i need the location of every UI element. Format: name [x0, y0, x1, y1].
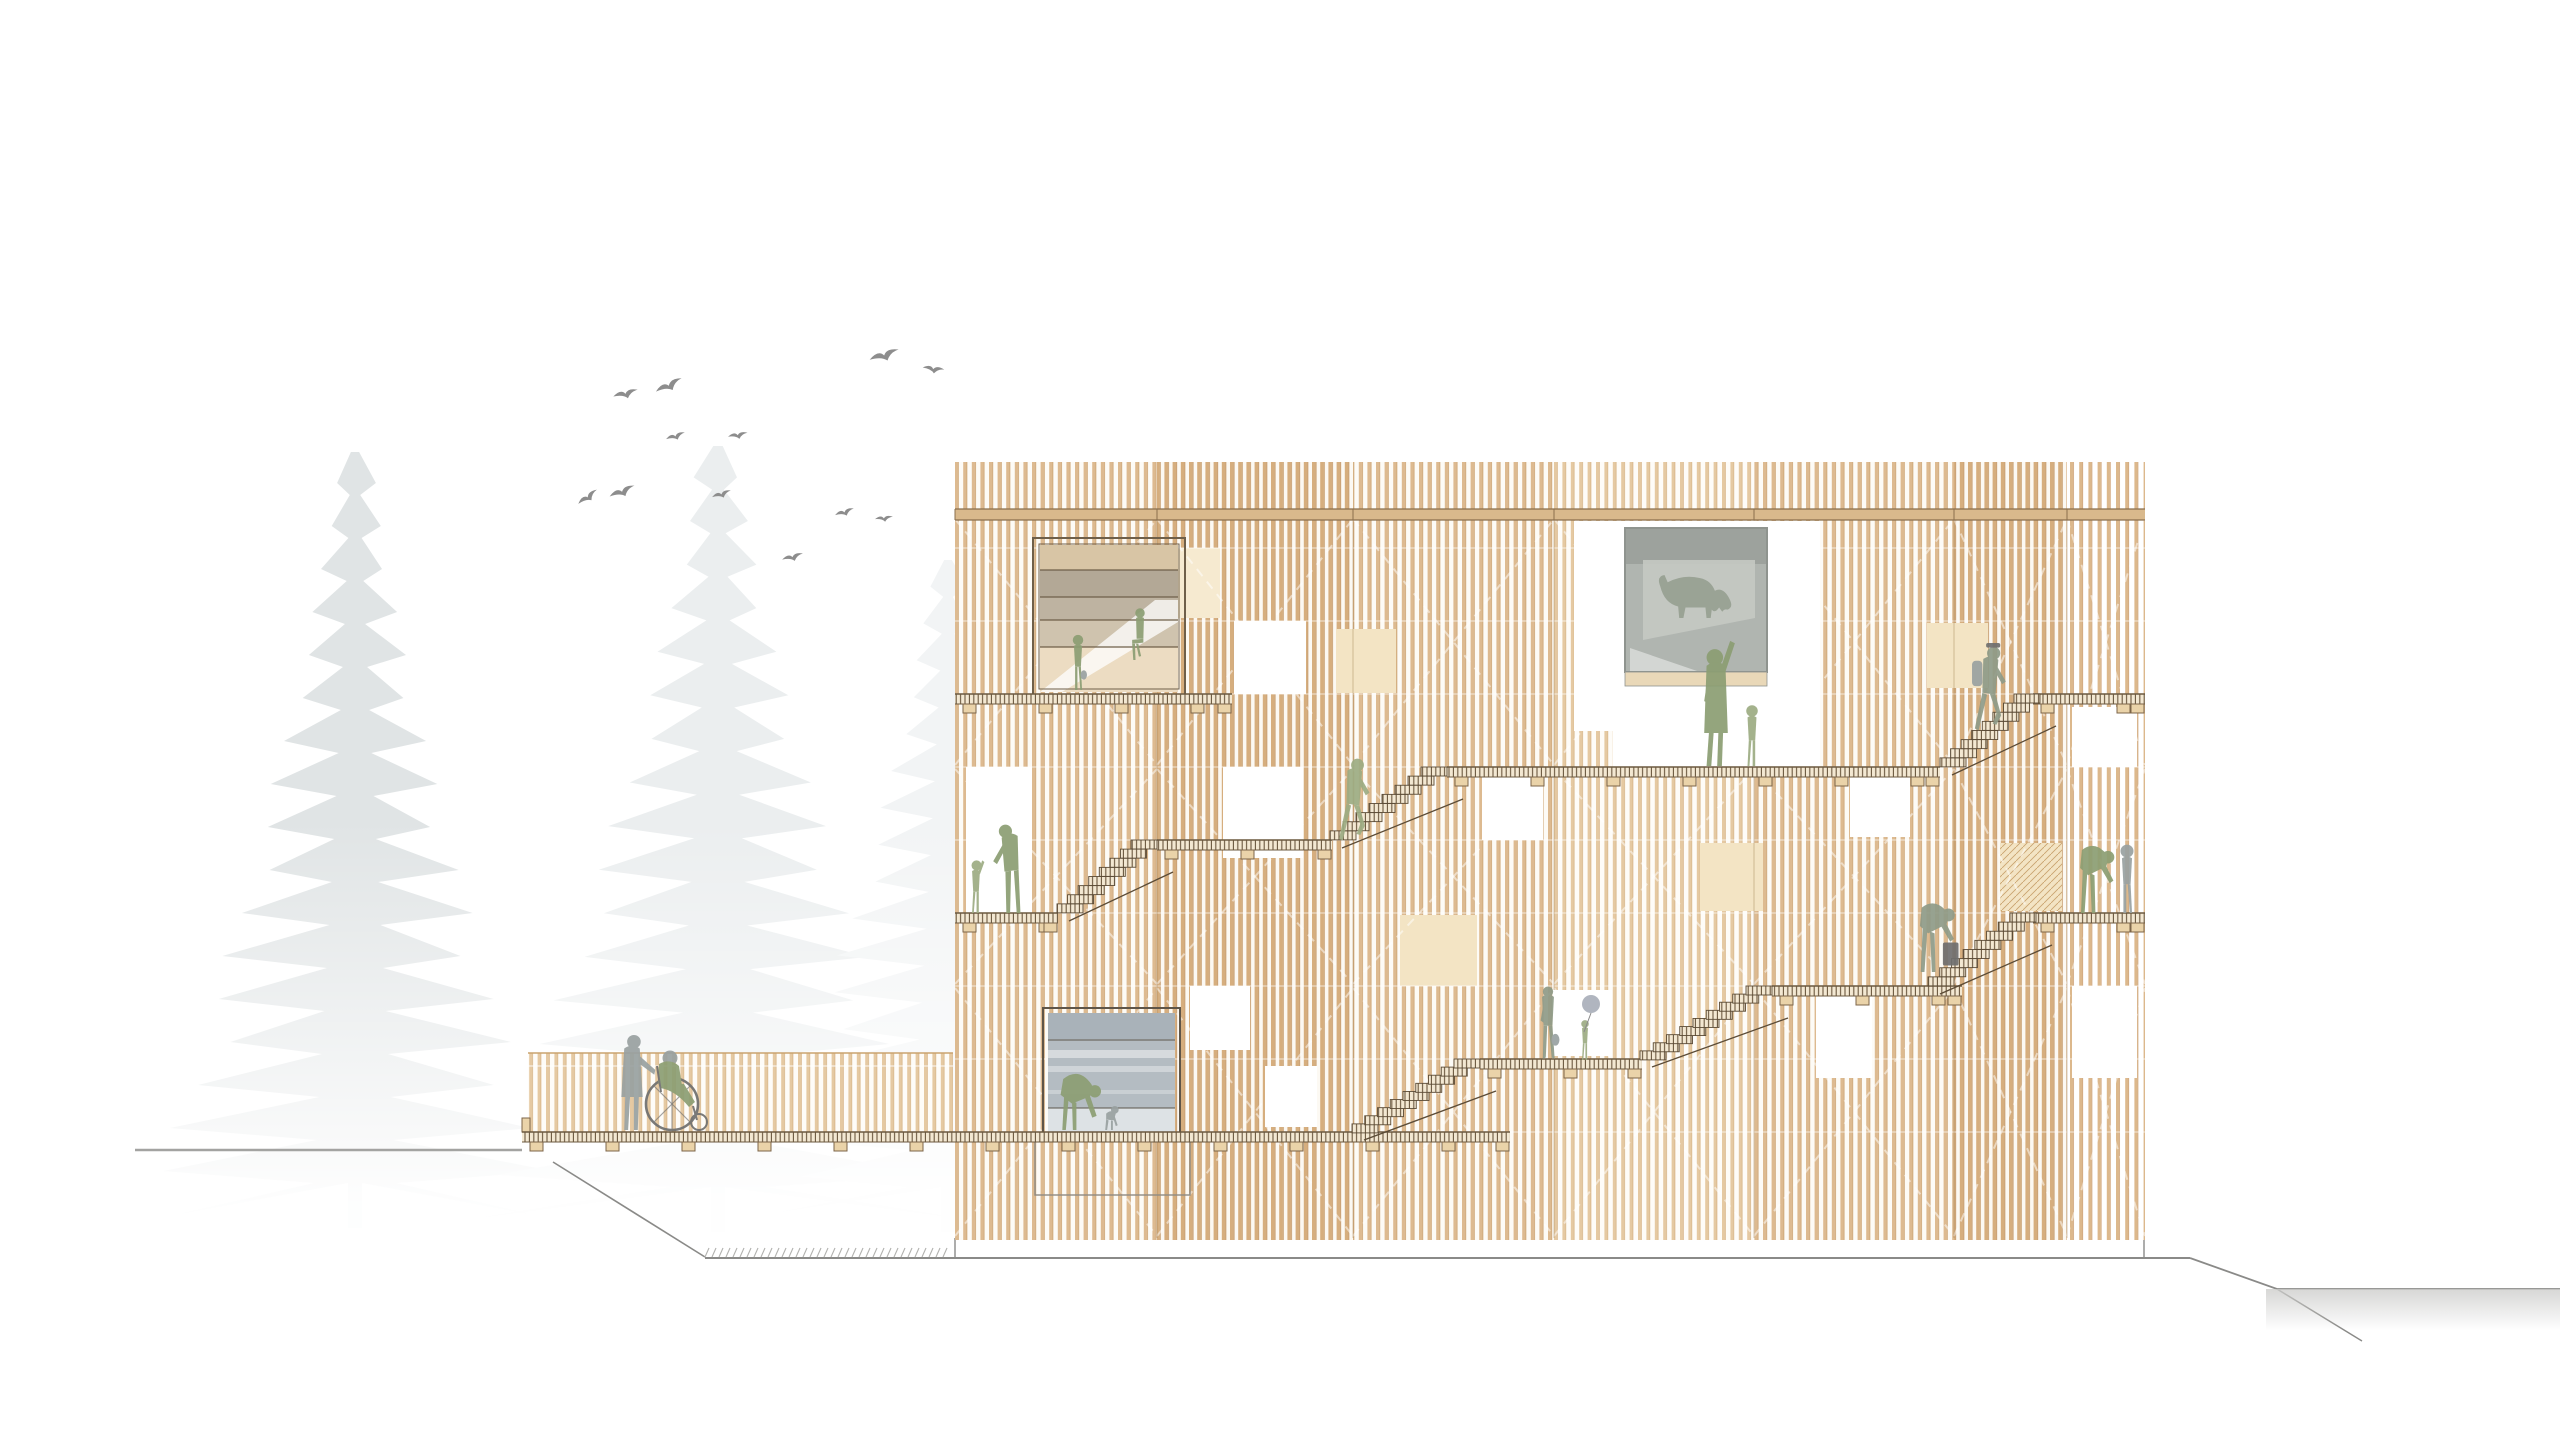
walkway-footing — [1835, 777, 1848, 786]
walkway-footing — [2117, 923, 2130, 932]
figure-body-part — [1074, 644, 1082, 666]
walkway-deck-band — [1480, 1059, 1642, 1069]
walkway-footing — [2131, 923, 2144, 932]
walkway-footing — [1115, 704, 1128, 713]
ground-shadow-wash — [2266, 1289, 2560, 1331]
walkway-footing — [1496, 1142, 1509, 1151]
walkway-footing — [1138, 1142, 1151, 1151]
top-beam — [955, 509, 2145, 520]
figure-body-part — [1111, 1120, 1113, 1130]
sky-reflection-streak — [1048, 1050, 1175, 1058]
stair-step — [1998, 922, 2024, 931]
backpack-prop — [1972, 661, 1982, 686]
window-reading-nook — [1033, 538, 1185, 695]
stair-step — [1940, 968, 1966, 977]
figure-head — [1073, 635, 1083, 645]
figure-body-part — [2122, 856, 2132, 884]
stair-step — [1987, 931, 2013, 940]
walkway-footing — [963, 923, 976, 932]
stair-step — [1720, 1002, 1746, 1011]
plain-panel-1 — [1336, 629, 1396, 693]
walkway-footing — [1948, 996, 1961, 1005]
walkway-deck-band — [1447, 767, 1940, 777]
stair-step — [1951, 749, 1977, 758]
mist-fade — [60, 820, 990, 1270]
stair-step — [1928, 977, 1954, 986]
stair-step — [1099, 867, 1125, 876]
figure-body-part — [2123, 884, 2126, 913]
walkway-footing — [2131, 704, 2144, 713]
stair-step — [1131, 840, 1157, 849]
walkway-footing — [1318, 850, 1331, 859]
stair-step — [1640, 1051, 1666, 1060]
stair-step — [2003, 703, 2029, 712]
stair-step — [1390, 1100, 1416, 1109]
stair-step — [1940, 758, 1966, 767]
walkway-footing — [1926, 777, 1939, 786]
stair-step — [1972, 731, 1998, 740]
stair-step — [1057, 904, 1083, 913]
walkway-deck-band — [2033, 694, 2145, 704]
stair-step — [1395, 785, 1421, 794]
walkway-footing — [1607, 777, 1620, 786]
walkway-footing — [1856, 996, 1869, 1005]
stair-step — [1068, 895, 1094, 904]
opening-lower-square-2 — [1190, 986, 1250, 1050]
opening-lower-right-edge — [2072, 986, 2137, 1078]
window-dog — [1574, 521, 1820, 767]
stair-step — [1706, 1010, 1732, 1019]
ramp-railing-slats — [528, 1053, 953, 1132]
walkway-footing — [1911, 777, 1924, 786]
stair-step — [1429, 1075, 1455, 1084]
balloon — [1582, 995, 1600, 1013]
cap-prop — [1986, 643, 2000, 648]
figure-head — [1135, 608, 1145, 618]
stair-step — [1416, 1083, 1442, 1092]
stair-step — [2010, 913, 2036, 922]
stair-step — [1089, 877, 1115, 886]
stair-step — [1408, 776, 1434, 785]
interior-band — [1040, 570, 1178, 597]
walkway-footing — [1214, 1142, 1227, 1151]
figure-body-part — [1005, 871, 1011, 913]
walkway-footing — [1062, 1142, 1075, 1151]
walkway-footing — [2041, 923, 2054, 932]
walkway-footing — [2117, 704, 2130, 713]
walkway-footing — [1455, 777, 1468, 786]
sky-reflection-streak — [1048, 1066, 1175, 1072]
figure-body-part — [1753, 740, 1756, 766]
walkway-footing — [1683, 777, 1696, 786]
opening-mid-square-3 — [1850, 775, 1910, 837]
figure-body-part — [977, 892, 979, 913]
stair-step — [1680, 1027, 1706, 1036]
figure-body-part — [1136, 617, 1144, 639]
figure-body-part — [621, 1046, 642, 1097]
bag-prop — [1551, 1034, 1559, 1046]
walkway-footing — [758, 1142, 771, 1151]
opening-lower-square-3 — [1265, 1066, 1317, 1127]
walkway-footing — [1442, 1142, 1455, 1151]
stair-step — [2014, 694, 2040, 703]
stair-step — [1078, 886, 1104, 895]
stair-step — [1961, 740, 1987, 749]
walkway-footing — [1780, 996, 1793, 1005]
stair-step — [1653, 1043, 1679, 1052]
suitcase-prop — [1943, 943, 1959, 966]
walkway-footing — [1044, 923, 1057, 932]
walkway-footing — [1290, 1142, 1303, 1151]
figure-body-part — [1982, 656, 1998, 694]
figure-body-part — [1748, 716, 1757, 741]
walkway-footing — [1531, 777, 1544, 786]
plain-panel-2 — [1400, 915, 1477, 986]
opening-upper-right — [2072, 707, 2137, 767]
glazing-top-shade — [1625, 528, 1767, 564]
stair-step — [1421, 767, 1447, 776]
ramp-end-post — [522, 1118, 530, 1132]
walkway-footing — [1039, 704, 1052, 713]
walkway-footing — [1191, 704, 1204, 713]
stair-step — [1120, 849, 1146, 858]
elevation-drawing — [0, 0, 2560, 1440]
walkway-footing — [2041, 704, 2054, 713]
stair-step — [1667, 1035, 1693, 1044]
stair-step — [1382, 794, 1408, 803]
glazing-top-band — [1048, 1013, 1175, 1039]
stair-step — [1441, 1067, 1467, 1076]
stair-step — [1403, 1091, 1429, 1100]
stair-step — [1733, 994, 1759, 1003]
stair-step — [1454, 1059, 1480, 1068]
walkway-footing — [682, 1142, 695, 1151]
figure-head — [1746, 705, 1758, 717]
walkway-deck-band — [1772, 986, 1962, 996]
walkway-footing — [834, 1142, 847, 1151]
stair-step — [1693, 1018, 1719, 1027]
stair-step — [1352, 1124, 1378, 1133]
walkway-deck-band — [1157, 840, 1332, 850]
window-sill — [1625, 672, 1767, 686]
walkway-footing — [1218, 704, 1231, 713]
walkway-footing — [1488, 1069, 1501, 1078]
walkway-footing — [530, 1142, 543, 1151]
stair-step — [1365, 1116, 1391, 1125]
walkway-footing — [1759, 777, 1772, 786]
opening-upper-square-1 — [1234, 621, 1306, 694]
walkway-deck-band — [955, 913, 1058, 923]
stair-step — [1963, 950, 1989, 959]
walkway-deck-band — [522, 1132, 1510, 1142]
walkway-deck-band — [2033, 913, 2145, 923]
walkway-footing — [963, 704, 976, 713]
stair-step — [1369, 804, 1395, 813]
bag-prop — [1081, 670, 1087, 679]
walkway-footing — [986, 1142, 999, 1151]
figure-head — [2121, 845, 2134, 858]
stair-step — [1378, 1108, 1404, 1117]
walkway-footing — [1241, 850, 1254, 859]
figure-body-part — [1002, 834, 1019, 872]
interior-top-band — [1040, 545, 1178, 570]
stair-step — [1110, 858, 1136, 867]
figure-body-part — [1585, 1043, 1587, 1060]
figure-body-part — [1346, 768, 1362, 806]
walkway-footing — [606, 1142, 619, 1151]
walkway-footing — [1564, 1069, 1577, 1078]
access-ramp — [522, 1053, 953, 1132]
walkway-footing — [1366, 1142, 1379, 1151]
walkway-footing — [1628, 1069, 1641, 1078]
stair-step — [1746, 986, 1772, 995]
figure-body-part — [1075, 667, 1077, 690]
walkway-footing — [1932, 996, 1945, 1005]
walkway-deck-band — [955, 694, 1232, 704]
walkway-footing — [910, 1142, 923, 1151]
walkway-footing — [1165, 850, 1178, 859]
stair-step — [1975, 940, 2001, 949]
elevation-page — [0, 0, 2560, 1440]
